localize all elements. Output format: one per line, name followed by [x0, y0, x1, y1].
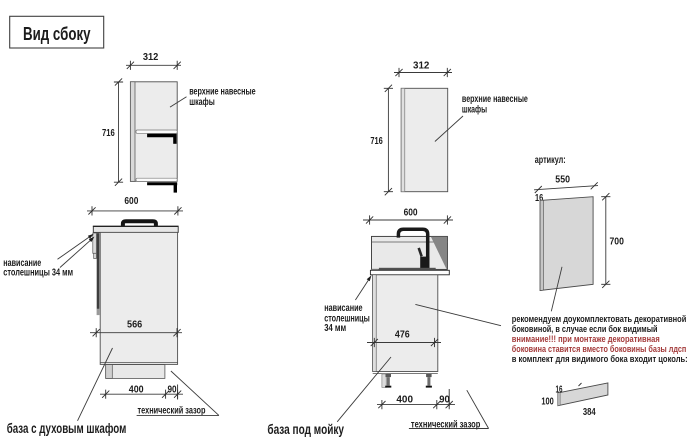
svg-text:716: 716: [370, 135, 383, 147]
svg-text:16: 16: [556, 385, 563, 396]
svg-text:566: 566: [127, 319, 142, 331]
svg-text:база под мойку: база под мойку: [267, 422, 344, 437]
svg-text:716: 716: [102, 127, 115, 139]
svg-text:90: 90: [439, 393, 450, 405]
svg-text:550: 550: [555, 174, 570, 186]
svg-text:шкафы: шкафы: [189, 96, 215, 108]
svg-text:база с духовым шкафом: база с духовым шкафом: [7, 421, 127, 436]
svg-text:100: 100: [541, 395, 554, 407]
svg-text:90: 90: [167, 383, 176, 395]
svg-text:34 мм: 34 мм: [324, 322, 346, 334]
svg-text:столешницы 34 мм: столешницы 34 мм: [3, 267, 73, 279]
svg-text:шкафы: шкафы: [462, 104, 487, 116]
svg-text:артикул:: артикул:: [535, 154, 566, 166]
svg-text:384: 384: [583, 406, 596, 418]
svg-text:312: 312: [143, 51, 159, 63]
svg-text:400: 400: [396, 393, 413, 405]
svg-text:в комплект для видимого бока в: в комплект для видимого бока входит цоко…: [512, 354, 688, 365]
svg-text:600: 600: [124, 195, 138, 207]
svg-text:600: 600: [404, 206, 418, 218]
svg-text:технический зазор: технический зазор: [138, 405, 206, 417]
svg-text:312: 312: [413, 60, 430, 72]
svg-text:700: 700: [610, 236, 625, 248]
svg-text:400: 400: [129, 383, 144, 395]
svg-text:Вид сбоку: Вид сбоку: [23, 24, 91, 44]
svg-text:476: 476: [395, 328, 410, 340]
